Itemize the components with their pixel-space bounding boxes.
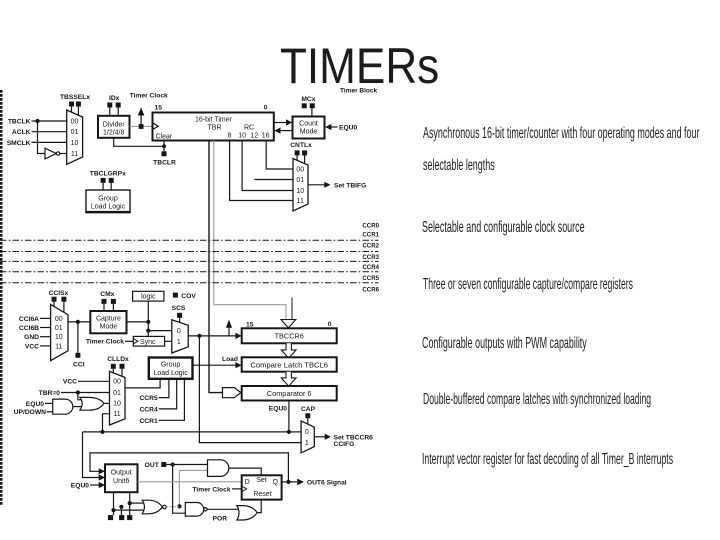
svg-text:01: 01 — [296, 177, 304, 184]
svg-text:Set: Set — [256, 477, 267, 484]
svg-text:15: 15 — [155, 104, 163, 111]
svg-text:00: 00 — [113, 379, 121, 386]
svg-text:CCR4: CCR4 — [139, 406, 157, 413]
svg-text:CLLDx: CLLDx — [107, 356, 129, 363]
svg-text:0: 0 — [305, 429, 309, 436]
svg-text:11: 11 — [71, 151, 78, 158]
svg-text:Load: Load — [222, 356, 238, 363]
svg-text:10: 10 — [238, 133, 246, 140]
svg-text:CCR5: CCR5 — [362, 275, 379, 282]
svg-text:10: 10 — [55, 334, 63, 341]
svg-text:MCx: MCx — [301, 96, 315, 103]
svg-text:SCS: SCS — [172, 305, 186, 312]
svg-text:CAP: CAP — [301, 406, 316, 413]
svg-text:OUT: OUT — [145, 462, 160, 469]
svg-text:16-bit Timer: 16-bit Timer — [195, 117, 233, 124]
svg-text:CCR6: CCR6 — [362, 286, 379, 293]
svg-text:CCR5: CCR5 — [139, 395, 157, 402]
svg-text:EQU0: EQU0 — [26, 401, 44, 408]
svg-text:POR: POR — [213, 516, 228, 523]
svg-text:Capture: Capture — [96, 316, 121, 323]
svg-text:Sync: Sync — [140, 339, 156, 346]
svg-text:CCR1: CCR1 — [139, 418, 157, 425]
svg-text:Load Logic: Load Logic — [91, 204, 126, 211]
svg-text:01: 01 — [71, 129, 79, 136]
svg-text:Divider: Divider — [103, 122, 125, 129]
svg-text:8: 8 — [228, 133, 232, 140]
svg-text:11: 11 — [55, 343, 62, 350]
svg-text:TBCCR6: TBCCR6 — [275, 331, 304, 340]
svg-text:TBCLK: TBCLK — [8, 118, 31, 125]
svg-text:00: 00 — [296, 166, 304, 173]
svg-text:D: D — [245, 479, 250, 486]
svg-text:01: 01 — [55, 325, 63, 332]
svg-text:IDx: IDx — [109, 95, 120, 102]
svg-text:Mode: Mode — [300, 129, 318, 136]
svg-text:00: 00 — [55, 316, 63, 323]
svg-text:11: 11 — [297, 198, 304, 205]
svg-text:Load Logic: Load Logic — [153, 370, 188, 377]
svg-text:Set TBIFG: Set TBIFG — [334, 182, 366, 189]
svg-text:11: 11 — [113, 411, 120, 418]
svg-text:10: 10 — [296, 188, 304, 195]
svg-text:EQU0: EQU0 — [269, 406, 287, 413]
svg-text:CCIFG: CCIFG — [334, 441, 355, 448]
svg-text:EQU0: EQU0 — [71, 482, 89, 489]
svg-text:00: 00 — [71, 118, 79, 125]
svg-text:Count: Count — [299, 121, 318, 128]
svg-text:TBR: TBR — [208, 124, 222, 131]
svg-text:1: 1 — [305, 440, 309, 447]
svg-text:CCISx: CCISx — [49, 290, 69, 297]
svg-text:Timer Clock: Timer Clock — [86, 338, 124, 345]
svg-text:Group: Group — [98, 195, 118, 202]
svg-text:CCI6A: CCI6A — [19, 316, 39, 323]
svg-text:Timer Clock: Timer Clock — [192, 487, 230, 494]
svg-text:CCI6B: CCI6B — [19, 325, 39, 332]
svg-text:Compare Latch TBCL6: Compare Latch TBCL6 — [250, 360, 328, 369]
svg-text:10: 10 — [71, 140, 79, 147]
svg-text:Q: Q — [272, 479, 278, 486]
svg-text:OUT6 Signal: OUT6 Signal — [307, 480, 347, 487]
svg-text:EQU0: EQU0 — [339, 125, 357, 132]
svg-text:12: 12 — [251, 133, 259, 140]
svg-text:GND: GND — [24, 334, 39, 341]
svg-text:CCR3: CCR3 — [362, 254, 379, 261]
svg-text:16: 16 — [262, 133, 270, 140]
svg-text:COV: COV — [181, 293, 196, 300]
svg-text:CMx: CMx — [100, 291, 114, 298]
svg-text:Timer Clock: Timer Clock — [130, 92, 168, 99]
svg-text:CCR0: CCR0 — [362, 222, 379, 229]
svg-text:CCR2: CCR2 — [362, 243, 379, 250]
svg-text:logic: logic — [141, 294, 156, 301]
svg-text:Group: Group — [161, 361, 181, 368]
svg-text:01: 01 — [113, 390, 121, 397]
svg-text:Unit6: Unit6 — [113, 478, 129, 485]
svg-text:VCC: VCC — [25, 343, 39, 350]
svg-text:CCI: CCI — [73, 362, 85, 369]
svg-text:1/2/4/8: 1/2/4/8 — [103, 130, 125, 137]
svg-text:Clear: Clear — [156, 133, 173, 140]
svg-text:TBCLR: TBCLR — [153, 159, 176, 166]
svg-text:TBR=0: TBR=0 — [39, 390, 61, 397]
svg-text:CNTLx: CNTLx — [290, 142, 312, 149]
svg-text:RC: RC — [244, 124, 254, 131]
svg-text:Mode: Mode — [100, 324, 118, 331]
svg-text:0: 0 — [177, 328, 181, 335]
svg-text:CCR4: CCR4 — [362, 264, 379, 271]
svg-text:0: 0 — [328, 321, 332, 328]
svg-text:TBSSELx: TBSSELx — [60, 94, 90, 101]
svg-text:10: 10 — [113, 400, 121, 407]
svg-text:TBCLGRPx: TBCLGRPx — [90, 171, 126, 178]
svg-text:CCR1: CCR1 — [362, 232, 379, 239]
svg-text:Reset: Reset — [253, 491, 271, 498]
svg-text:ACLK: ACLK — [12, 129, 31, 136]
svg-text:UP/DOWN: UP/DOWN — [14, 409, 46, 416]
svg-text:Comparator 6: Comparator 6 — [267, 389, 312, 398]
svg-text:Output: Output — [111, 470, 132, 477]
svg-text:0: 0 — [264, 104, 268, 111]
svg-text:VCC: VCC — [63, 379, 77, 386]
svg-text:SMCLK: SMCLK — [7, 140, 31, 147]
svg-text:1: 1 — [177, 339, 181, 346]
